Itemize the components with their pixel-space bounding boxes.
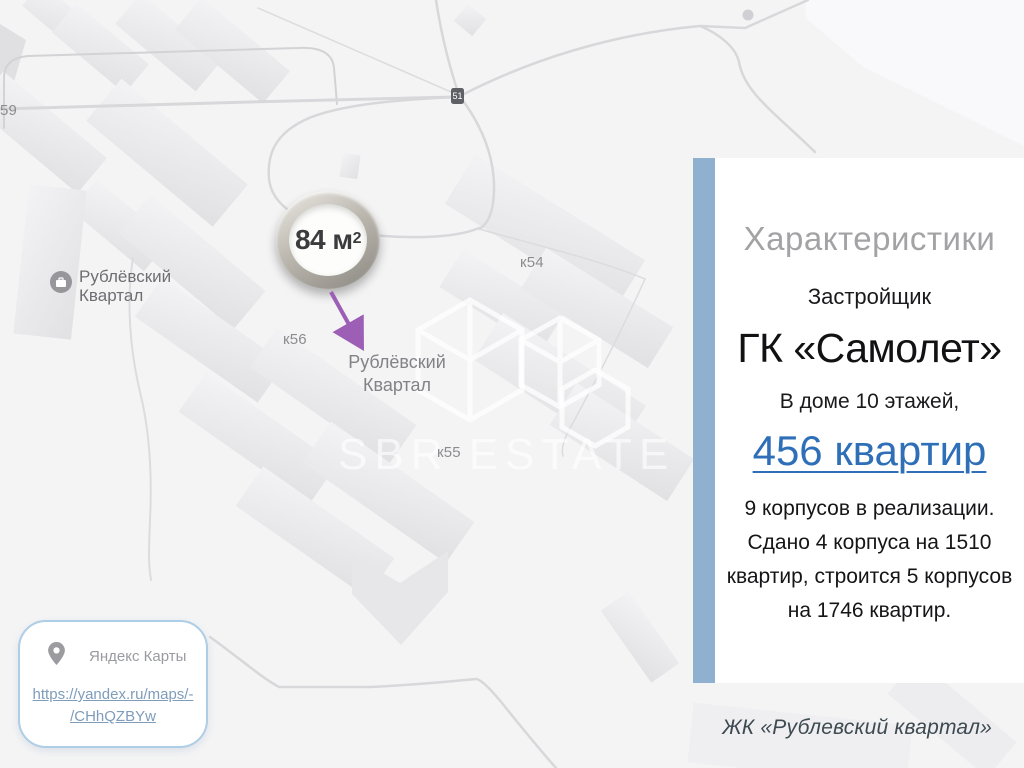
place-left-line1: Рублёвский [79,267,171,286]
watermark-brand: SBR ESTATE [338,430,675,480]
details-panel: Характеристики Застройщик ГК «Самолет» В… [693,158,1024,683]
map-label-k55: к55 [437,444,461,461]
map-label-k56: к56 [283,331,307,348]
map-place-rublevsky-left: Рублёвский Квартал [50,266,171,305]
panel-title: Характеристики [715,220,1024,258]
panel-accent-bar [693,158,715,683]
road-number-badge: 51 [451,88,464,104]
area-marker-balloon[interactable]: 84 м2 [276,191,380,289]
place-center-line2: Квартал [327,374,467,397]
developer-label: Застройщик [715,284,1024,310]
place-icon [50,271,72,293]
roundabout-dot [743,10,754,21]
complex-name-caption: ЖК «Рублевский квартал» [722,716,992,740]
map-source-link[interactable]: https://yandex.ru/maps/- /CHhQZBYw [20,684,206,728]
description-line: Сдано 4 корпуса на 1510 [715,526,1024,560]
map-source-card: Яндекс Карты https://yandex.ru/maps/- /C… [18,620,208,748]
floors-line: В доме 10 этажей, [715,390,1024,414]
map-label-59: 59 [0,102,17,119]
source-url-line2[interactable]: /CHhQZBYw [20,706,206,728]
area-sup: 2 [353,230,361,247]
description-line: квартир, строится 5 корпусов [715,560,1024,594]
panel-description: 9 корпусов в реализации. Сдано 4 корпуса… [715,492,1024,628]
map-place-rublevsky-center: Рублёвский Квартал [327,351,467,397]
place-left-line2: Квартал [79,286,171,305]
location-pin-icon [48,642,65,670]
area-value: 84 м [295,224,353,255]
description-line: 9 корпусов в реализации. [715,492,1024,526]
source-url-line1[interactable]: https://yandex.ru/maps/- [20,684,206,706]
source-provider-label: Яндекс Карты [89,648,186,665]
map-label-k54: к54 [520,254,544,271]
area-marker-face: 84 м2 [289,204,367,276]
slide: SBR ESTATE 59 Рублёвский Квартал к56 к54… [0,0,1024,768]
apartments-link[interactable]: 456 квартир [753,427,987,475]
developer-name: ГК «Самолет» [715,325,1024,372]
place-center-line1: Рублёвский [327,351,467,374]
description-line: на 1746 квартир. [715,594,1024,628]
